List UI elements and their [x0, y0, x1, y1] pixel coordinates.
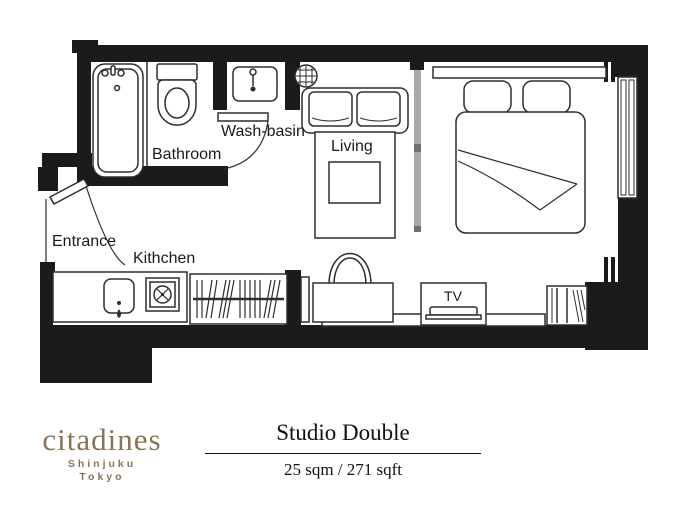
bed [456, 112, 585, 233]
headboard [433, 67, 606, 78]
floor-plan: Bathroom Wash-basin Living Entrance Kith… [0, 0, 689, 400]
label-living: Living [331, 138, 373, 155]
label-washbasin: Wash-basin [221, 123, 305, 140]
kitchen-sink [104, 279, 134, 318]
logo-location-line2: Tokyo [28, 471, 176, 484]
room-area: 25 sqm / 271 sqft [205, 460, 481, 480]
label-bathroom: Bathroom [152, 146, 221, 163]
sofa [302, 88, 408, 133]
label-kitchen: Kithchen [133, 250, 195, 267]
label-entrance: Entrance [52, 233, 116, 250]
room-title-block: Studio Double 25 sqm / 271 sqft [205, 420, 481, 480]
pillow-left [464, 81, 511, 113]
label-tv: TV [444, 288, 463, 304]
bathroom-door [218, 113, 268, 169]
logo-location-line1: Shinjuku [28, 458, 176, 471]
tv-screen [430, 307, 477, 315]
floor-plan-page: Bathroom Wash-basin Living Entrance Kith… [0, 0, 689, 516]
kitchen-fixtures [53, 272, 309, 324]
wardrobe [190, 274, 287, 324]
washbasin-fixture [233, 67, 277, 101]
bathtub [93, 64, 143, 177]
shelf [547, 286, 587, 325]
toilet [157, 64, 197, 125]
window [618, 77, 637, 198]
pillow-right [523, 81, 570, 113]
desk [313, 283, 393, 322]
sliding-partition [414, 70, 421, 232]
brand-logo: citadines Shinjuku Tokyo [28, 424, 176, 484]
stove [146, 278, 179, 311]
logo-wordmark: citadines [28, 424, 176, 455]
desk-chair [329, 254, 371, 286]
narrow-cabinet [301, 277, 309, 322]
room-name: Studio Double [205, 420, 481, 454]
entrance-door [46, 179, 125, 265]
